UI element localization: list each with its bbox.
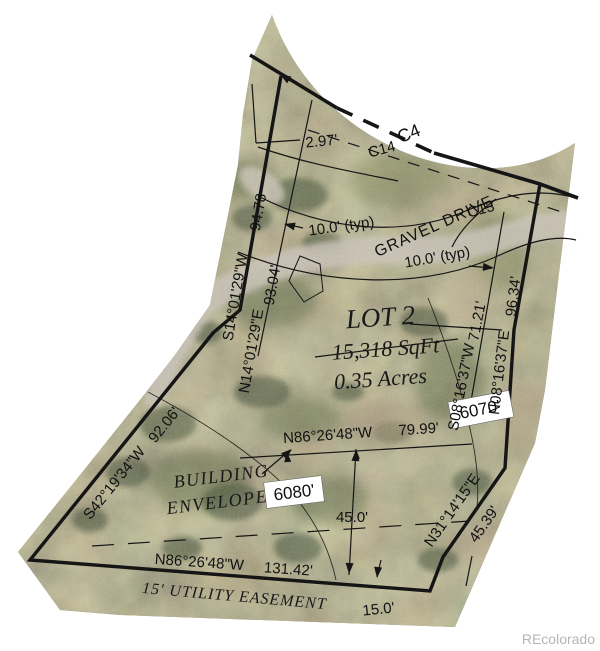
- offset-297-label: 2.97': [305, 131, 339, 151]
- curve-c4-label: C4: [394, 120, 423, 147]
- aerial-photo: [0, 0, 600, 651]
- easement-width-dim-label: 15.0': [362, 599, 396, 619]
- plat-map-image: 2.97' C4 C14 GRAVEL DRIVE C13 10.0' (typ…: [0, 0, 600, 651]
- bearing-n86mid-length: 79.99': [398, 420, 440, 440]
- recolorado-watermark: REcolorado: [522, 631, 595, 647]
- envelope-depth-dim-label: 45.0': [336, 509, 368, 526]
- plat-map-svg: 2.97' C4 C14 GRAVEL DRIVE C13 10.0' (typ…: [0, 0, 600, 651]
- terrain-grain: [0, 0, 600, 651]
- lot-name-label: LOT 2: [344, 300, 416, 335]
- bearing-n86bottom-length: 131.42': [263, 559, 313, 579]
